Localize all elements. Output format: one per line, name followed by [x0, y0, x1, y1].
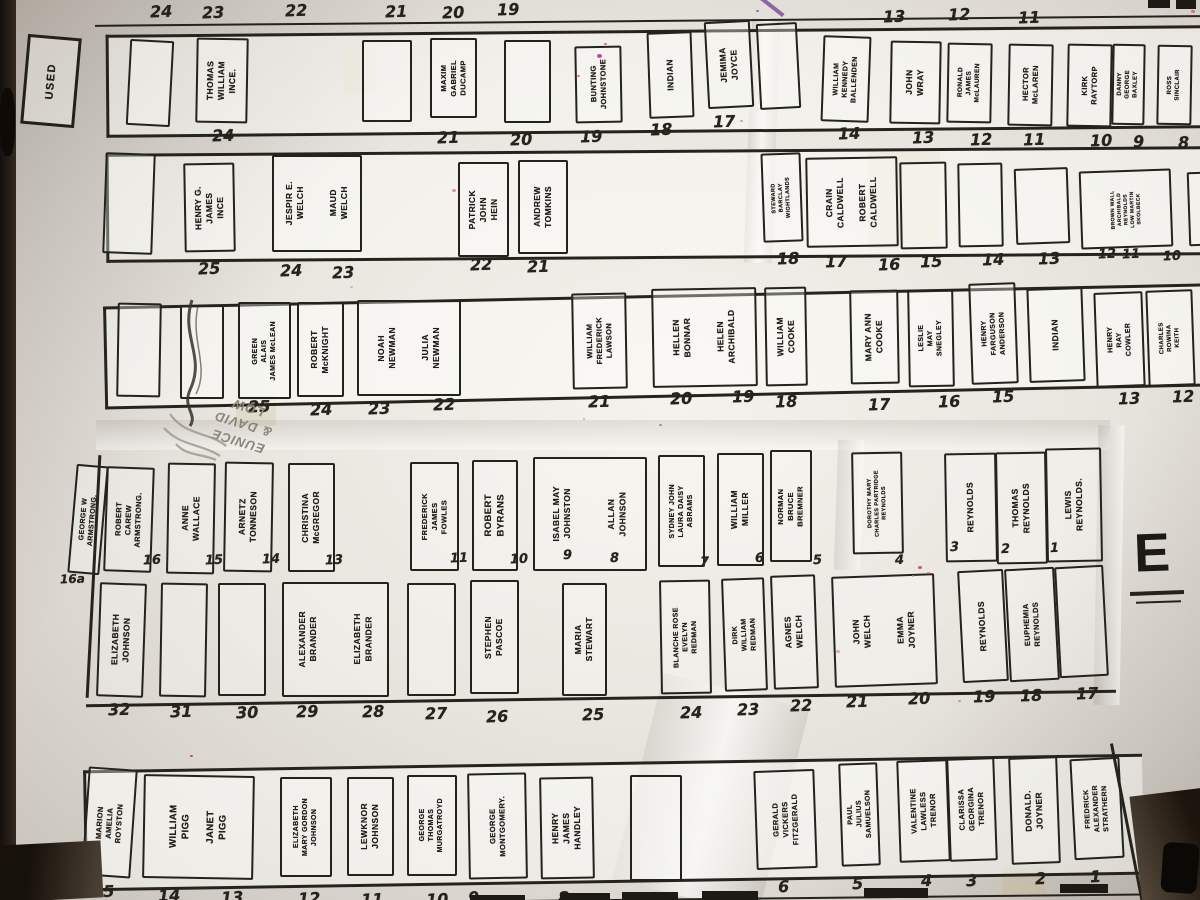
- plot-name: HENRY JAMES HANDLEY: [550, 806, 584, 850]
- plot-box: GERALD VICKERS FITZGERALD: [753, 769, 817, 870]
- plot-number: 23: [202, 3, 225, 23]
- plot-box: ROBERT McKNIGHT: [297, 302, 344, 397]
- plot-box: ALEXANDER BRANDER ELIZABETH BRANDER: [282, 582, 389, 697]
- plot-box: REYNOLDS: [957, 569, 1009, 683]
- plot-number: 17: [713, 112, 736, 132]
- cutoff-box: [864, 888, 928, 898]
- plot-name: REYNOLDS: [976, 601, 990, 652]
- plot-name: HENRY FARGUSON ANDERSON: [979, 311, 1008, 355]
- plot-name: ANNE WALLACE: [180, 496, 203, 541]
- plot-name: ELIZABETH JOHNSON: [110, 614, 134, 666]
- plot-name: MARIA STEWART: [573, 617, 595, 661]
- plot-name: MARION AMELIA ROYSTON: [94, 802, 126, 844]
- plot-box: LESLIE MAY SNEGLEY: [907, 290, 955, 388]
- plot-number: 18: [650, 120, 673, 140]
- plot-name: PATRICK JOHN HEIN: [467, 190, 500, 229]
- plot-number: 5: [813, 553, 823, 568]
- plot-box: STEPHEN PASCOE: [470, 580, 519, 694]
- plot-name: CRAIN CALDWELL ROBERT CALDWELL: [824, 176, 880, 228]
- plot-name: VALENTINE LAWLESS TRENOR: [908, 788, 939, 835]
- plot-box: CLARISSA GEORGINA TRENOR: [946, 757, 998, 862]
- plot-number: 10: [426, 890, 449, 900]
- plot-box: CHARLES ROWINA KEITH: [1145, 289, 1195, 387]
- cutoff-box: [702, 891, 758, 900]
- plot-number: 23: [737, 700, 760, 720]
- plot-name: MAXIM GABRIEL DUCAMP: [439, 60, 468, 97]
- plot-number: 20: [670, 389, 693, 409]
- plot-name: FREDERICK JAMES FOWLES: [420, 493, 449, 540]
- section-letter: E: [1133, 521, 1171, 584]
- plot-box: DIRK WILLIAM REDMAN: [721, 577, 768, 691]
- plot-number: 12: [1172, 387, 1195, 407]
- stain-speck: [912, 575, 914, 577]
- plot-box: DANNY GEORGE BAXLEY: [1111, 44, 1145, 126]
- plot-number: 8: [610, 551, 620, 566]
- plot-box: WILLIAM PIGG JANET PIGG: [142, 774, 255, 880]
- plot-box: ROSS SINCLAIR: [1156, 45, 1192, 126]
- plot-box: HENRY FARGUSON ANDERSON: [968, 282, 1018, 385]
- plot-name: CHRISTINA McGREGOR: [300, 491, 322, 544]
- plot-box: [504, 40, 551, 123]
- plot-box: DOROTHY MARY CHARLES PARTRIDGE REYNOLDS: [851, 452, 904, 555]
- plot-name: DIRK WILLIAM REDMAN: [730, 617, 758, 651]
- plot-number: 22: [470, 255, 493, 275]
- plot-box: NOAH NEWMAN JULIA NEWMAN: [357, 300, 461, 396]
- plot-name: CLARISSA GEORGINA TRENOR: [957, 787, 988, 832]
- plot-number: 6: [755, 551, 765, 566]
- plot-number: 14: [838, 124, 861, 144]
- plot-name: DONALD. JOYNER: [1023, 789, 1047, 831]
- plot-number: 17: [868, 395, 891, 415]
- plot-name: BLANCHE ROSE EVELYN REDMAN: [671, 606, 699, 667]
- plot-number: 24: [150, 2, 173, 22]
- plot-number: 11: [450, 551, 469, 567]
- plot-number: 30: [236, 703, 259, 723]
- plot-number: 12: [1098, 247, 1117, 263]
- plot-number: 22: [433, 395, 456, 415]
- plot-number: 15: [205, 553, 224, 569]
- plot-name: SYDNEY JOHN LAURA DAISY ABRAMS: [668, 484, 695, 538]
- plot-box: [630, 775, 682, 881]
- plot-name: ROBERT McKNIGHT: [309, 326, 331, 374]
- cemetery-plot-map-photo: THOMAS WILLIAM INCE.MAXIM GABRIEL DUCAMP…: [0, 0, 1200, 900]
- plot-box: WILLIAM FREDERICK LAWSON: [571, 293, 628, 390]
- plot-box: DONALD. JOYNER: [1008, 756, 1061, 865]
- plot-box: [1187, 172, 1200, 247]
- plot-box: VALENTINE LAWLESS TRENOR: [896, 759, 951, 863]
- plot-number: 26: [486, 707, 509, 727]
- plot-box: HELLEN BONNAR HELEN ARCHIBALD: [651, 287, 758, 388]
- plot-number: 18: [1020, 686, 1043, 706]
- plot-number: 24: [310, 400, 333, 420]
- plot-number: 11: [1122, 247, 1141, 263]
- plot-number: 22: [285, 1, 308, 21]
- cutoff-box: [1148, 0, 1170, 8]
- plot-box: EUPHEMIA REYNOLDS: [1004, 567, 1060, 682]
- plot-name: GEORGE THOMAS MURGATROYD: [418, 798, 445, 852]
- plot-name: AGNES WELCH: [783, 615, 806, 649]
- plot-box: [957, 163, 1003, 248]
- plot-number: 13: [1118, 389, 1141, 409]
- plot-number: 3: [950, 540, 960, 555]
- plot-name: ISABEL MAY JOHNSTON ALLAN JOHNSON: [551, 486, 628, 542]
- plot-number: 16: [878, 255, 901, 275]
- plot-box: INDIAN: [1026, 287, 1085, 383]
- plot-box: [1014, 167, 1071, 245]
- plot-number: 12: [298, 889, 321, 900]
- plot-name: HECTOR McLAREN: [1020, 65, 1040, 104]
- plot-box: NORMAN BRUCE BREMNER: [770, 450, 812, 562]
- plot-number: 19: [732, 387, 755, 407]
- plot-number: 2: [1001, 542, 1011, 557]
- photo-shadow: [1160, 842, 1199, 894]
- plot-number: 19: [580, 127, 603, 147]
- plot-number: 20: [510, 130, 533, 150]
- plot-box: GEORGE THOMAS MURGATROYD: [407, 775, 457, 876]
- plot-name: DANNY GEORGE BAXLEY: [1117, 70, 1141, 99]
- plot-number: 13: [912, 128, 935, 148]
- plot-box: RONALD JAMES McLAUREN: [946, 43, 992, 124]
- plot-number: 8: [1178, 133, 1190, 152]
- plot-name: ROBERT BYRANS: [483, 494, 508, 537]
- plot-box: ELIZABETH JOHNSON: [96, 582, 147, 698]
- plot-box: HENRY RAY COWLER: [1093, 291, 1145, 388]
- plot-box: ANDREW TOMKINS: [518, 160, 568, 254]
- plot-box: [218, 583, 266, 696]
- plot-box: PAUL JULIUS SAMUELSON: [838, 762, 881, 866]
- plot-name: WILLIAM FREDERICK LAWSON: [584, 317, 614, 365]
- plot-name: DOROTHY MARY CHARLES PARTRIDGE REYNOLDS: [866, 469, 889, 536]
- plot-box: SYDNEY JOHN LAURA DAISY ABRAMS: [658, 455, 705, 567]
- plot-box: LEWKNOR JOHNSON: [347, 777, 394, 876]
- plot-name: BROWN WALL ARCHIBALD REYNOLDS LOW MARTIN…: [1109, 189, 1143, 229]
- plot-name: HENRY G. JAMES INCE: [193, 185, 227, 229]
- plot-number: 21: [527, 257, 550, 277]
- plot-box: JOHN WELCH EMMA JOYNER: [831, 573, 938, 688]
- plot-name: ANDREW TOMKINS: [532, 186, 554, 228]
- plot-name: THOMAS WILLIAM INCE.: [205, 61, 239, 101]
- plot-name: FREDRICK ALEXANDER STRATHERN: [1082, 784, 1112, 833]
- plot-number: 14: [262, 552, 281, 568]
- plot-box: JOHN WRAY: [889, 41, 941, 125]
- plot-number: 12: [970, 130, 993, 150]
- plot-number: 17: [825, 252, 848, 272]
- plot-name: STEPHEN PASCOE: [483, 616, 505, 659]
- plot-number: 6: [778, 877, 790, 896]
- plot-name: ROBERT CAREW ARMSTRONG.: [113, 491, 144, 547]
- plot-name: WILLIAM KENNEDY BALLENDEN: [832, 55, 861, 103]
- plot-number: 13: [221, 888, 244, 900]
- plot-number: 13: [883, 7, 906, 27]
- plot-name: KIRK RAYTORP: [1079, 66, 1099, 105]
- plot-name: JEMIMA JOYCE: [717, 46, 741, 83]
- plot-box: STEWARD BARCLAY WIGHTLANDS: [760, 152, 803, 242]
- photo-shadow: [0, 88, 15, 156]
- plot-name: ELIZABETH MARY GORDON JOHNSON: [292, 798, 319, 856]
- plot-name: STEWARD BARCLAY WIGHTLANDS: [771, 176, 794, 218]
- plot-number: 24: [680, 703, 703, 723]
- plot-number: 21: [385, 2, 408, 22]
- plot-number: 12: [948, 5, 971, 25]
- plot-number: 16: [938, 392, 961, 412]
- plot-number: 10: [1163, 249, 1182, 265]
- plot-box: WILLIAM COOKE: [764, 287, 808, 387]
- plot-name: EUPHEMIA REYNOLDS: [1021, 602, 1043, 648]
- plot-number: 18: [777, 249, 800, 269]
- plot-number: 9: [1133, 132, 1145, 151]
- plot-name: CHARLES ROWINA KEITH: [1158, 322, 1182, 355]
- plot-number: 4: [895, 553, 905, 568]
- plot-number: 28: [362, 702, 385, 722]
- plot-box: [407, 583, 456, 696]
- plot-box: [756, 22, 801, 110]
- plot-box: HENRY G. JAMES INCE: [183, 163, 236, 253]
- plot-number: 24: [280, 261, 303, 281]
- plot-name: BUNTING JOHNSTONE: [588, 59, 608, 109]
- plot-number: 23: [368, 399, 391, 419]
- cutoff-box: [470, 895, 525, 900]
- plot-name: WILLIAM MILLER: [729, 490, 751, 529]
- plot-box: WILLIAM KENNEDY BALLENDEN: [821, 35, 872, 123]
- plot-number: 13: [325, 553, 344, 569]
- plot-name: ARNETZ TONNESON: [237, 491, 260, 543]
- plot-box: PATRICK JOHN HEIN: [458, 162, 509, 257]
- plot-number: 29: [296, 702, 319, 722]
- plot-box: MARY ANN COOKE: [849, 290, 900, 385]
- plot-name: REYNOLDS: [965, 482, 977, 533]
- cutoff-box: [1060, 884, 1108, 893]
- plot-number: 10: [510, 552, 529, 568]
- plot-name: LEWKNOR JOHNSON: [359, 803, 381, 850]
- plot-number: 11: [1023, 130, 1046, 150]
- plot-name: INDIAN: [1050, 319, 1062, 351]
- plot-box: ISABEL MAY JOHNSTON ALLAN JOHNSON: [533, 457, 647, 571]
- plot-box: BLANCHE ROSE EVELYN REDMAN: [659, 580, 712, 695]
- plot-number: 25: [198, 259, 221, 279]
- plot-box: [159, 583, 208, 698]
- plot-name: WILLIAM COOKE: [775, 317, 798, 357]
- plot-name: WILLIAM PIGG JANET PIGG: [167, 805, 229, 850]
- plot-number: 17: [1076, 684, 1099, 704]
- plot-number: 10: [1090, 131, 1113, 151]
- cutoff-box: [622, 892, 678, 900]
- plot-number: 24: [212, 126, 235, 146]
- plot-name: LESLIE MAY SNEGLEY: [917, 320, 945, 357]
- plot-name: NOAH NEWMAN JULIA NEWMAN: [376, 327, 442, 369]
- used-label: USED: [42, 62, 59, 100]
- plot-number: 5: [852, 874, 864, 893]
- plot-name: THOMAS REYNOLDS: [1010, 483, 1033, 534]
- plot-box: THOMAS WILLIAM INCE.: [195, 38, 248, 124]
- plot-box: [126, 39, 174, 127]
- plot-number: 21: [588, 392, 611, 412]
- plot-number: 23: [332, 263, 355, 283]
- stain-speck: [583, 418, 585, 420]
- stain-speck: [597, 54, 602, 58]
- plot-number: 22: [790, 696, 813, 716]
- plot-name: INDIAN: [664, 59, 676, 91]
- plot-number: 16a: [60, 572, 85, 587]
- plot-box: JEMIMA JOYCE: [704, 20, 754, 109]
- plot-name: ALEXANDER BRANDER ELIZABETH BRANDER: [297, 611, 374, 668]
- plot-box: HENRY JAMES HANDLEY: [539, 777, 595, 880]
- plot-box: GEORGE MONTGOMERY.: [467, 772, 528, 879]
- plot-box: [899, 162, 948, 250]
- used-marker: USED: [20, 34, 82, 128]
- plot-box: [1054, 565, 1109, 678]
- pen-scribble: [140, 286, 270, 476]
- plot-number: 27: [425, 704, 448, 724]
- plot-name: GEORGE MONTGOMERY.: [487, 795, 508, 856]
- plot-box: AGNES WELCH: [770, 574, 819, 690]
- plot-number: 3: [966, 871, 978, 890]
- cutoff-box: [560, 893, 610, 900]
- cutoff-box: [1176, 0, 1196, 9]
- plot-number: 19: [973, 687, 996, 707]
- plot-box: INDIAN: [647, 31, 695, 119]
- photo-shadow: [0, 840, 103, 900]
- plot-box: KIRK RAYTORP: [1066, 44, 1112, 128]
- plot-number: 25: [582, 705, 605, 725]
- plot-name: JOHN WRAY: [904, 69, 927, 96]
- plot-number: 20: [442, 3, 465, 23]
- plot-number: 21: [437, 128, 460, 148]
- plot-box: CRAIN CALDWELL ROBERT CALDWELL: [805, 156, 899, 248]
- plot-box: BROWN WALL ARCHIBALD REYNOLDS LOW MARTIN…: [1079, 168, 1174, 249]
- plot-number: 11: [361, 890, 384, 900]
- plot-name: RONALD JAMES McLAUREN: [957, 63, 983, 103]
- plot-name: JESPIR E. WELCH MAUD WELCH: [284, 181, 350, 225]
- plot-name: LEWIS REYNOLDS.: [1062, 478, 1085, 532]
- plot-box: HECTOR McLAREN: [1007, 44, 1053, 127]
- plot-number: 13: [1038, 249, 1061, 269]
- plot-number: 18: [775, 392, 798, 412]
- plot-number: 32: [108, 700, 131, 720]
- plot-name: PAUL JULIUS SAMUELSON: [845, 790, 874, 839]
- plot-name: MARY ANN COOKE: [863, 313, 886, 362]
- plot-name: ROSS SINCLAIR: [1166, 69, 1182, 101]
- plot-name: JOHN WELCH EMMA JOYNER: [851, 611, 919, 651]
- plot-name: NORMAN BRUCE BREMNER: [776, 486, 805, 527]
- plot-number: 16: [143, 553, 162, 569]
- plot-box: JESPIR E. WELCH MAUD WELCH: [272, 155, 362, 252]
- plot-number: 14: [158, 886, 181, 900]
- plot-box: [362, 40, 412, 122]
- plot-number: 9: [563, 548, 573, 563]
- plot-box: MAXIM GABRIEL DUCAMP: [430, 38, 477, 118]
- plot-box: WILLIAM MILLER: [717, 453, 764, 566]
- plot-number: 15: [992, 387, 1015, 407]
- plot-box: ELIZABETH MARY GORDON JOHNSON: [280, 777, 332, 877]
- plot-number: 1: [1050, 541, 1060, 556]
- plot-name: GERALD VICKERS FITZGERALD: [770, 793, 801, 845]
- plot-name: HELLEN BONNAR HELEN ARCHIBALD: [671, 310, 738, 365]
- plot-number: 2: [1035, 869, 1047, 888]
- plot-number: 19: [497, 0, 520, 19]
- plot-number: 7: [700, 555, 710, 570]
- plot-number: 14: [982, 250, 1005, 270]
- plot-box: [102, 152, 155, 255]
- plot-number: 15: [920, 252, 943, 272]
- plot-box: MARIA STEWART: [562, 583, 607, 696]
- plot-name: HENRY RAY COWLER: [1105, 322, 1133, 356]
